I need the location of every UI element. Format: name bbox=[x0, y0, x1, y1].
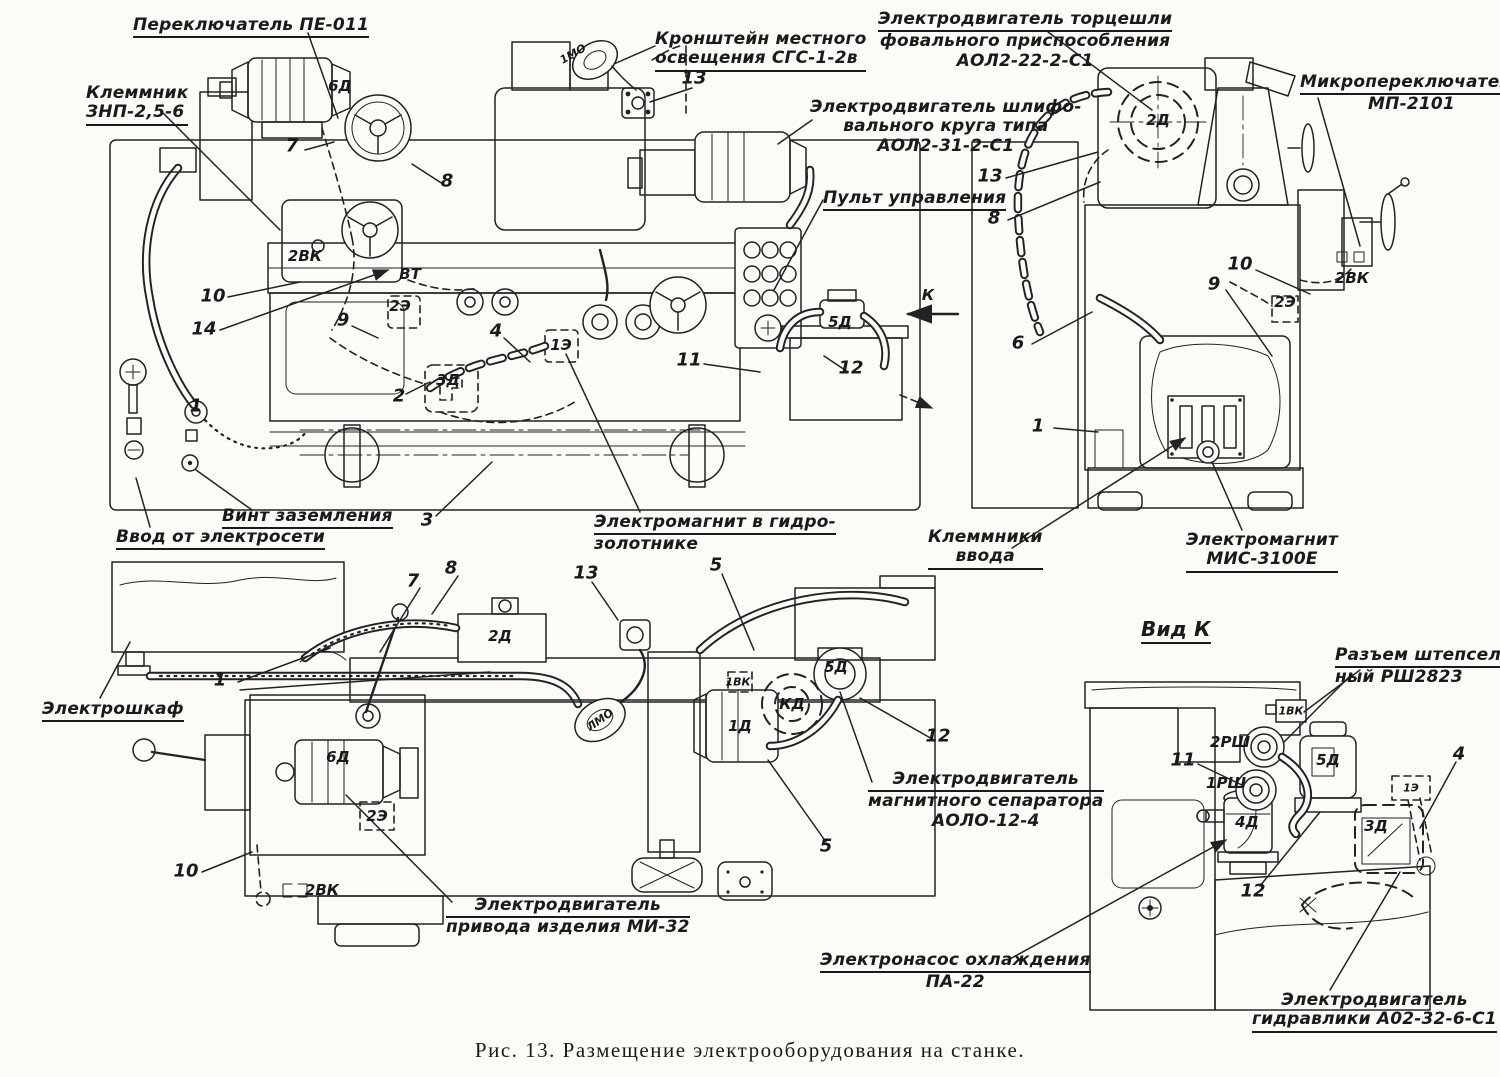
pedal-icon[interactable] bbox=[632, 840, 702, 892]
part-number-7: 7 bbox=[286, 136, 299, 157]
component-code-КД: КД bbox=[779, 695, 805, 713]
component-code-2ВК: 2ВК bbox=[288, 247, 322, 265]
part-number-1: 1 bbox=[214, 670, 227, 691]
component-code-К: К bbox=[922, 286, 934, 304]
callout-switch-pe011: Переключатель ПЕ-011 bbox=[133, 16, 369, 38]
callout-motor-face-grinding: Электродвигатель торцешлифовального прис… bbox=[878, 10, 1172, 71]
component-code-2Э: 2Э bbox=[389, 297, 410, 315]
callout-input-terminals: Клеммникиввода bbox=[928, 528, 1043, 570]
part-number-11: 11 bbox=[1170, 750, 1195, 771]
part-number-2: 2 bbox=[393, 386, 406, 407]
part-number-8: 8 bbox=[441, 171, 454, 192]
view-k-drawing bbox=[1085, 682, 1435, 1010]
callout-light-bracket: Кронштейн местногоосвещения СГС-1-2в bbox=[655, 30, 866, 72]
part-number-8: 8 bbox=[445, 558, 458, 579]
handwheel-icon[interactable] bbox=[345, 95, 411, 161]
component-code-ВТ: ВТ bbox=[399, 265, 421, 283]
component-code-1Д: 1Д bbox=[728, 717, 752, 735]
callout-motor-grinding-wheel: Электродвигатель шлифо-вального круга ти… bbox=[810, 98, 1082, 156]
callout-microswitch: МикропереключательМП-2101 bbox=[1300, 73, 1500, 115]
component-code-6Д: 6Д bbox=[326, 748, 350, 766]
component-code-1РШ: 1РШ bbox=[1206, 774, 1246, 792]
component-code-5Д: 5Д bbox=[824, 658, 848, 676]
component-code-2ВК: 2ВК bbox=[305, 881, 339, 899]
part-number-10: 10 bbox=[173, 861, 198, 882]
component-code-6Д: 6Д bbox=[328, 77, 352, 95]
part-number-4: 4 bbox=[1453, 744, 1466, 765]
part-number-12: 12 bbox=[838, 358, 863, 379]
part-number-13: 13 bbox=[573, 563, 598, 584]
part-number-6: 6 bbox=[1012, 333, 1025, 354]
callout-electromagnet-hydrovalve: Электромагнит в гидро-золотнике bbox=[594, 513, 836, 555]
part-number-9: 9 bbox=[337, 310, 350, 331]
part-number-4: 4 bbox=[490, 321, 503, 342]
part-number-13: 13 bbox=[681, 68, 706, 89]
component-code-2Д: 2Д bbox=[488, 627, 512, 645]
callout-terminal-znp: КлеммникЗНП-2,5-6 bbox=[86, 84, 188, 126]
handwheel-icon[interactable] bbox=[342, 202, 398, 258]
component-code-1ВК: 1ВК bbox=[1278, 705, 1303, 718]
part-number-10: 10 bbox=[200, 286, 225, 307]
grounding-icon bbox=[120, 359, 198, 471]
part-number-13: 13 bbox=[977, 166, 1002, 187]
component-code-5Д: 5Д bbox=[828, 313, 852, 331]
component-code-4Д: 4Д bbox=[1235, 813, 1259, 831]
part-number-1: 1 bbox=[190, 396, 203, 417]
component-code-2Э: 2Э bbox=[1274, 293, 1295, 311]
part-number-7: 7 bbox=[407, 571, 420, 592]
part-number-14: 14 bbox=[191, 319, 216, 340]
component-code-3Д: 3Д bbox=[1364, 817, 1388, 835]
component-code-1Э: 1Э bbox=[550, 336, 571, 354]
component-code-2ВК: 2ВК bbox=[1335, 269, 1369, 287]
callout-coolant-pump: Электронасос охлажденияПА-22 bbox=[820, 951, 1091, 993]
part-number-5: 5 bbox=[820, 836, 833, 857]
rear-view-drawing bbox=[112, 562, 935, 946]
callout-electromagnet-mis: ЭлектромагнитМИС-3100Е bbox=[1186, 531, 1338, 573]
callout-motor-hydraulics: Электродвигательгидравлики А02-32-6-С1 bbox=[1252, 991, 1497, 1033]
grinding-motor-icon bbox=[695, 132, 806, 202]
part-number-1: 1 bbox=[1032, 416, 1045, 437]
callout-electric-cabinet: Электрошкаф bbox=[42, 700, 184, 722]
handwheel-icon[interactable] bbox=[650, 277, 706, 333]
callout-plug-connector: Разъем штепсель-ный РШ2823 bbox=[1335, 646, 1500, 688]
part-number-9: 9 bbox=[1208, 274, 1221, 295]
component-code-2РШ: 2РШ bbox=[1210, 733, 1250, 751]
component-code-1Э: 1Э bbox=[1403, 782, 1419, 795]
part-number-5: 5 bbox=[710, 555, 723, 576]
electromagnet-mis-icon bbox=[1140, 336, 1290, 468]
component-code-2Э: 2Э bbox=[366, 807, 387, 825]
part-number-3: 3 bbox=[421, 510, 434, 531]
callout-mains-input: Ввод от электросети bbox=[116, 528, 325, 550]
component-code-5Д: 5Д bbox=[1316, 751, 1340, 769]
figure-caption: Рис. 13. Размещение электрооборудования … bbox=[0, 1038, 1500, 1063]
callout-motor-separator: Электродвигательмагнитного сепаратораАОЛ… bbox=[868, 770, 1104, 831]
callout-motor-workpiece-drive: Электродвигательпривода изделия МИ-32 bbox=[446, 896, 690, 938]
part-number-12: 12 bbox=[925, 726, 950, 747]
part-number-11: 11 bbox=[676, 350, 701, 371]
callout-control-panel: Пульт управления bbox=[823, 189, 1006, 211]
component-code-1ВК: 1ВК bbox=[725, 676, 750, 689]
callout-view-k-title: Вид К bbox=[1141, 618, 1211, 644]
part-number-8: 8 bbox=[988, 208, 1001, 229]
component-code-2Д: 2Д bbox=[1146, 111, 1170, 129]
part-number-12: 12 bbox=[1240, 881, 1265, 902]
component-code-3Д: 3Д bbox=[436, 371, 460, 389]
part-number-10: 10 bbox=[1227, 254, 1252, 275]
